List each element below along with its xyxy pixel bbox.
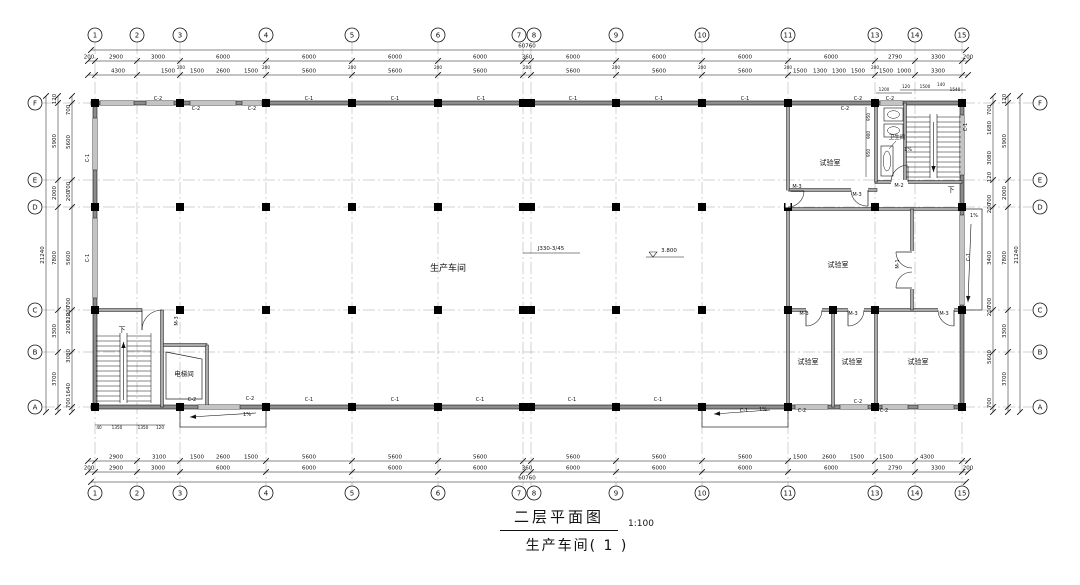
label: 200 — [963, 55, 974, 61]
label: A — [1038, 403, 1043, 411]
label: 5600 — [566, 455, 580, 461]
label: 120 — [156, 425, 164, 430]
label: 14 — [911, 31, 920, 39]
label: 1500 — [793, 455, 807, 461]
label: 5600 — [66, 135, 72, 149]
label: 1500 — [190, 69, 204, 75]
label: 3000 — [151, 466, 165, 472]
label: 7 — [517, 489, 521, 497]
label: 5600 — [473, 455, 487, 461]
label: 200 — [177, 65, 185, 70]
label: 700 — [987, 397, 993, 408]
label: 6 — [436, 489, 441, 497]
label: 3400 — [987, 251, 993, 265]
label: 6000 — [566, 466, 580, 472]
label: 200 — [262, 65, 270, 70]
label: 360 — [522, 55, 533, 61]
label: C-1 — [741, 96, 749, 102]
label: 下 — [948, 186, 955, 194]
label: 60760 — [518, 44, 536, 50]
label: 6000 — [388, 55, 402, 61]
label: 1 — [93, 489, 97, 497]
label: 6000 — [738, 466, 752, 472]
label: 2790 — [888, 466, 902, 472]
label: 1500 — [161, 69, 175, 75]
label: 3300 — [931, 69, 945, 75]
label: 10 — [698, 31, 707, 39]
label: 1500 — [244, 69, 258, 75]
label: 3 — [178, 489, 182, 497]
label: 2 — [135, 31, 139, 39]
label: 1500 — [190, 455, 204, 461]
label: 试验室 — [908, 357, 929, 366]
label: 6000 — [738, 55, 752, 61]
label: 3.800 — [661, 248, 677, 254]
wall-layer — [91, 101, 965, 409]
label: A — [33, 403, 38, 411]
label: 6000 — [652, 55, 666, 61]
label: 120 — [52, 93, 58, 104]
label: 试验室 — [820, 158, 841, 167]
label: 21240 — [40, 246, 46, 264]
floor-plan: 6076020029003000600060006000600036060006… — [0, 0, 1080, 585]
label: 14 — [911, 489, 920, 497]
label: 3000 — [151, 55, 165, 61]
label: 3300 — [52, 324, 58, 338]
label: 4300 — [111, 69, 125, 75]
label: 2900 — [109, 466, 123, 472]
label: 10 — [698, 489, 707, 497]
label: 8 — [532, 31, 536, 39]
label: 2600 — [216, 455, 230, 461]
label: 900 — [866, 131, 871, 139]
drawing-canvas: 6076020029003000600060006000600036060006… — [0, 0, 1080, 585]
label: 试验室 — [828, 260, 849, 269]
label: 5600 — [987, 350, 993, 364]
label: 6000 — [302, 55, 316, 61]
label: 5600 — [388, 69, 402, 75]
label: 700 — [987, 104, 993, 115]
label: B — [1038, 348, 1043, 356]
label: 3100 — [152, 455, 166, 461]
label: C-2 — [854, 399, 862, 405]
label: M-3 — [174, 316, 180, 325]
label: 2900 — [109, 55, 123, 61]
label: 9 — [614, 489, 618, 497]
label: 5600 — [652, 455, 666, 461]
label: 120 — [987, 171, 993, 182]
label: 200 — [84, 466, 95, 472]
label: 5600 — [302, 69, 316, 75]
label: 2000 — [1002, 186, 1008, 200]
label: C-1 — [569, 96, 577, 102]
label: F — [33, 99, 37, 107]
label: C-2 — [154, 96, 162, 102]
label: M-3 — [852, 192, 861, 198]
label: E — [1038, 176, 1042, 184]
label: 6000 — [473, 55, 487, 61]
label: 2600 — [216, 69, 230, 75]
label: C — [1038, 306, 1043, 314]
label: E — [33, 176, 37, 184]
label: 5600 — [473, 69, 487, 75]
label: C-1 — [305, 96, 313, 102]
label: 试验室 — [842, 357, 863, 366]
label: 6000 — [824, 466, 838, 472]
label: 6000 — [652, 466, 666, 472]
label: 1% — [970, 213, 978, 219]
label: D — [32, 203, 37, 211]
label: 7 — [517, 31, 521, 39]
label: 700 — [66, 181, 72, 192]
label: C-1 — [391, 96, 399, 102]
label: 11 — [784, 489, 793, 497]
label: 5600 — [738, 69, 752, 75]
label: 1500 — [244, 455, 258, 461]
label: M-2 — [894, 183, 903, 189]
label: 3080 — [66, 349, 72, 363]
label: 1500 — [879, 69, 893, 75]
label: 700 — [66, 397, 72, 408]
label: 1640 — [66, 383, 72, 397]
label: 7800 — [1002, 251, 1008, 265]
label: 6000 — [824, 55, 838, 61]
label: 3300 — [931, 466, 945, 472]
label: C-2 — [854, 96, 862, 102]
label: 200 — [784, 65, 792, 70]
label: C-2 — [841, 106, 849, 112]
label: 1200 — [879, 87, 890, 92]
label: 3300 — [931, 55, 945, 61]
label: C-2 — [188, 397, 196, 403]
label: C-2 — [886, 96, 894, 102]
label: 40 — [96, 425, 102, 430]
label: M-3 — [939, 311, 948, 317]
drawing-title: 二层平面图 — [500, 506, 618, 531]
label: 200 — [963, 466, 974, 472]
label: 120 — [1002, 93, 1008, 104]
label: 8 — [532, 489, 536, 497]
label: 1% — [759, 407, 767, 413]
label: 120 — [902, 84, 910, 89]
label: C-1 — [740, 408, 748, 414]
label: 200 — [348, 65, 356, 70]
label: 1680 — [987, 121, 993, 135]
label: 1000 — [897, 69, 911, 75]
label: 3080 — [987, 151, 993, 165]
label: C-1 — [391, 397, 399, 403]
label: 1500 — [793, 69, 807, 75]
label: 7800 — [52, 251, 58, 265]
label: 3300 — [1002, 324, 1008, 338]
label: C-1 — [568, 397, 576, 403]
label: 5900 — [1002, 134, 1008, 148]
label: 1 — [93, 31, 97, 39]
label: C-1 — [476, 397, 484, 403]
title-block: 二层平面图 1:100 生产车间( 1 ) — [462, 506, 692, 555]
text-layer: C-2C-2C-2C-1C-1C-1C-1C-1C-1C-2C-2C-2C-1C… — [85, 65, 978, 430]
label: C-1 — [654, 397, 662, 403]
label: 5 — [350, 489, 354, 497]
label: 1300 — [832, 69, 846, 75]
label: 200 — [698, 65, 706, 70]
label: D — [1037, 203, 1042, 211]
label: 200 — [523, 65, 531, 70]
label: C-1 — [655, 96, 663, 102]
label: 电梯间 — [174, 369, 194, 378]
label: C-2 — [248, 106, 256, 112]
label: 5 — [350, 31, 354, 39]
label: 200 — [66, 190, 72, 201]
label: 6000 — [473, 466, 487, 472]
label: 试验室 — [798, 357, 819, 366]
label: 2000 — [66, 320, 72, 334]
label: 200 — [871, 65, 879, 70]
label: 200 — [84, 55, 95, 61]
label: C-1 — [966, 253, 972, 261]
label: F — [1038, 99, 1042, 107]
label: C-1 — [85, 154, 91, 162]
label: 4300 — [920, 455, 934, 461]
label: 1300 — [813, 69, 827, 75]
label: 200 — [987, 305, 993, 316]
label: 6000 — [388, 466, 402, 472]
label: 1500 — [879, 455, 893, 461]
label: C-2 — [246, 396, 254, 402]
label: 11 — [784, 31, 793, 39]
label: 5600 — [738, 455, 752, 461]
label: 3 — [178, 31, 182, 39]
label: C-2 — [798, 408, 806, 414]
label: 5600 — [388, 455, 402, 461]
label: 5600 — [652, 69, 666, 75]
label: 4 — [264, 31, 269, 39]
label: 6000 — [216, 55, 230, 61]
label: 15 — [958, 489, 967, 497]
label: 1350 — [138, 425, 149, 430]
label: C-2 — [880, 408, 888, 414]
label: 3700 — [52, 372, 58, 386]
label: J330-3/45 — [537, 246, 565, 252]
label: 卫生间 — [889, 133, 906, 141]
label: B — [33, 348, 38, 356]
label: M-3 — [848, 311, 857, 317]
label: 1500 — [850, 455, 864, 461]
label: 6000 — [302, 466, 316, 472]
label: 700 — [66, 104, 72, 115]
label: 2790 — [888, 55, 902, 61]
label: 60760 — [518, 476, 536, 482]
label: M-3 — [792, 184, 801, 190]
label: 1500 — [851, 69, 865, 75]
label: 200 — [434, 65, 442, 70]
label: 1350 — [112, 425, 123, 430]
label: 3700 — [1002, 372, 1008, 386]
label: 1% — [904, 147, 912, 153]
label: 5900 — [52, 134, 58, 148]
label: 360 — [522, 466, 533, 472]
label: 2 — [135, 489, 139, 497]
label: 6000 — [216, 466, 230, 472]
label: C-1 — [85, 254, 91, 262]
label: 6000 — [566, 55, 580, 61]
label: C-2 — [192, 106, 200, 112]
label: C — [33, 306, 38, 314]
label: 13 — [871, 489, 880, 497]
label: 950 — [866, 113, 871, 121]
label: 15 — [958, 31, 967, 39]
label: 生产车间 — [430, 262, 466, 274]
label: 5600 — [66, 251, 72, 265]
label: 21240 — [1014, 246, 1020, 264]
label: 200 — [612, 65, 620, 70]
label: 6 — [436, 31, 441, 39]
label: M-3 — [799, 311, 808, 317]
label: M-1 — [895, 259, 901, 268]
label: 950 — [866, 149, 871, 157]
label: 下 — [119, 326, 126, 334]
label: C-1 — [963, 123, 969, 131]
label: 4 — [264, 489, 269, 497]
label: 140 — [937, 82, 945, 87]
label: C-1 — [305, 397, 313, 403]
label: 5600 — [302, 455, 316, 461]
label: 2000 — [52, 186, 58, 200]
drawing-scale: 1:100 — [628, 519, 654, 531]
label: 13 — [871, 31, 880, 39]
label: 5600 — [566, 69, 580, 75]
drawing-subtitle: 生产车间( 1 ) — [462, 535, 692, 555]
label: 2600 — [822, 455, 836, 461]
label: 9 — [614, 31, 618, 39]
label: C-1 — [477, 96, 485, 102]
label: 200 — [987, 202, 993, 213]
label: 1% — [243, 412, 251, 418]
label: 2900 — [109, 455, 123, 461]
label: 1540 — [950, 87, 961, 92]
label: 1500 — [920, 84, 931, 89]
